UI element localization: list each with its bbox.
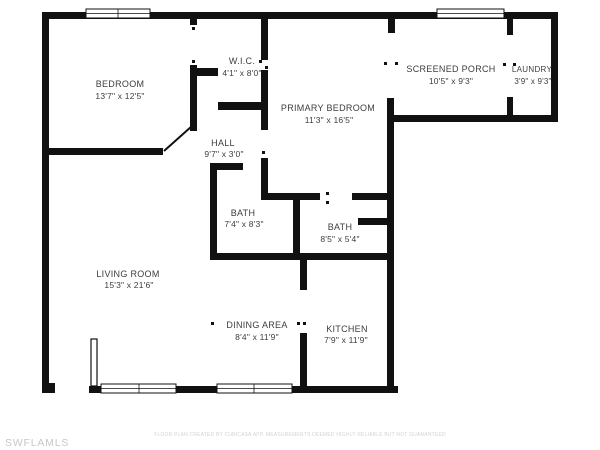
room-name: LAUNDRY <box>512 65 553 74</box>
wall-porch-left-stub <box>388 12 395 33</box>
room-label-laundry: LAUNDRY 3'9" x 9'3" <box>512 65 553 86</box>
room-label-dining-area: DINING AREA 8'4" x 11'9" <box>226 320 287 342</box>
wall-bottom-left-stub <box>42 383 55 393</box>
room-label-wic: W.I.C. 4'1" x 8'0" <box>222 56 261 78</box>
floor-plan-svg: BEDROOM 13'7" x 12'5" W.I.C. 4'1" x 8'0"… <box>0 0 600 450</box>
room-labels: BEDROOM 13'7" x 12'5" W.I.C. 4'1" x 8'0"… <box>95 56 552 345</box>
room-dims: 7'4" x 8'3" <box>224 219 263 229</box>
room-dims: 13'7" x 12'5" <box>95 91 144 101</box>
room-dims: 10'5" x 9'3" <box>429 76 473 86</box>
room-name: SCREENED PORCH <box>406 64 495 74</box>
room-name: BATH <box>231 208 256 218</box>
wall-bath2-partition <box>358 218 394 225</box>
room-label-hall: HALL 9'7" x 3'0" <box>204 138 243 159</box>
room-name: DINING AREA <box>226 320 287 330</box>
wall-laundry-divider-top <box>507 12 513 35</box>
wall-primary-left-lower <box>261 158 268 197</box>
room-dims: 3'9" x 9'3" <box>514 77 551 86</box>
room-name: BEDROOM <box>96 79 145 89</box>
footer: SWFLAMLS FLOOR PLAN CREATED BY CUBICASA … <box>5 432 446 449</box>
wall-porch-bottom <box>390 115 558 122</box>
patio-door-leaf <box>91 339 97 386</box>
room-label-bath-1: BATH 7'4" x 8'3" <box>224 208 263 229</box>
wall-bath1-top <box>210 163 243 170</box>
watermark-text: SWFLAMLS <box>5 437 69 449</box>
disclaimer-text: FLOOR PLAN CREATED BY CUBICASA APP. MEAS… <box>154 432 446 438</box>
wall-bedroom-living-divider <box>42 148 163 155</box>
wall-bath-divider <box>293 197 300 260</box>
room-name: LIVING ROOM <box>96 269 159 279</box>
room-name: KITCHEN <box>326 324 368 334</box>
wall-right-main <box>387 98 394 393</box>
room-dims: 15'3" x 21'6" <box>104 280 153 290</box>
wall-wic-bottom <box>218 102 268 110</box>
room-dims: 8'4" x 11'9" <box>235 332 279 342</box>
room-label-bath-2: BATH 8'5" x 5'4" <box>320 222 359 244</box>
room-label-primary-bedroom: PRIMARY BEDROOM 11'3" x 16'5" <box>281 103 375 125</box>
floor-plan-canvas: BEDROOM 13'7" x 12'5" W.I.C. 4'1" x 8'0"… <box>0 0 600 450</box>
wall-wic-right-a <box>261 12 268 60</box>
room-name: PRIMARY BEDROOM <box>281 103 375 113</box>
wall-kitchen-left-upper <box>300 260 307 290</box>
room-dims: 11'3" x 16'5" <box>305 115 354 125</box>
wall-laundry-divider-bottom <box>507 97 513 122</box>
room-label-kitchen: KITCHEN 7'9" x 11'9" <box>324 324 368 345</box>
room-dims: 8'5" x 5'4" <box>320 234 359 244</box>
room-label-bedroom: BEDROOM 13'7" x 12'5" <box>95 79 144 101</box>
doors <box>91 126 192 386</box>
wall-bath-bottom <box>210 253 394 260</box>
bedroom-door-leaf <box>164 126 192 151</box>
room-dims: 9'7" x 3'0" <box>204 149 243 159</box>
wall-bath2-top-b <box>352 193 394 200</box>
wall-wic-right-b <box>261 70 268 130</box>
wall-kitchen-left-lower <box>300 333 307 393</box>
room-label-screened-porch: SCREENED PORCH 10'5" x 9'3" <box>406 64 495 86</box>
wall-bedroom-right-stub <box>190 12 197 25</box>
wall-left <box>42 12 49 393</box>
room-name: HALL <box>211 138 235 148</box>
room-dims: 7'9" x 11'9" <box>324 335 368 345</box>
wall-wic-closet-bar <box>190 68 218 76</box>
room-label-living-room: LIVING ROOM 15'3" x 21'6" <box>96 269 159 290</box>
wall-bath2-top-a <box>261 193 320 200</box>
room-name: BATH <box>328 222 353 232</box>
wall-bath1-left <box>210 163 217 260</box>
room-name: W.I.C. <box>229 56 255 66</box>
room-dims: 4'1" x 8'0" <box>222 68 261 78</box>
